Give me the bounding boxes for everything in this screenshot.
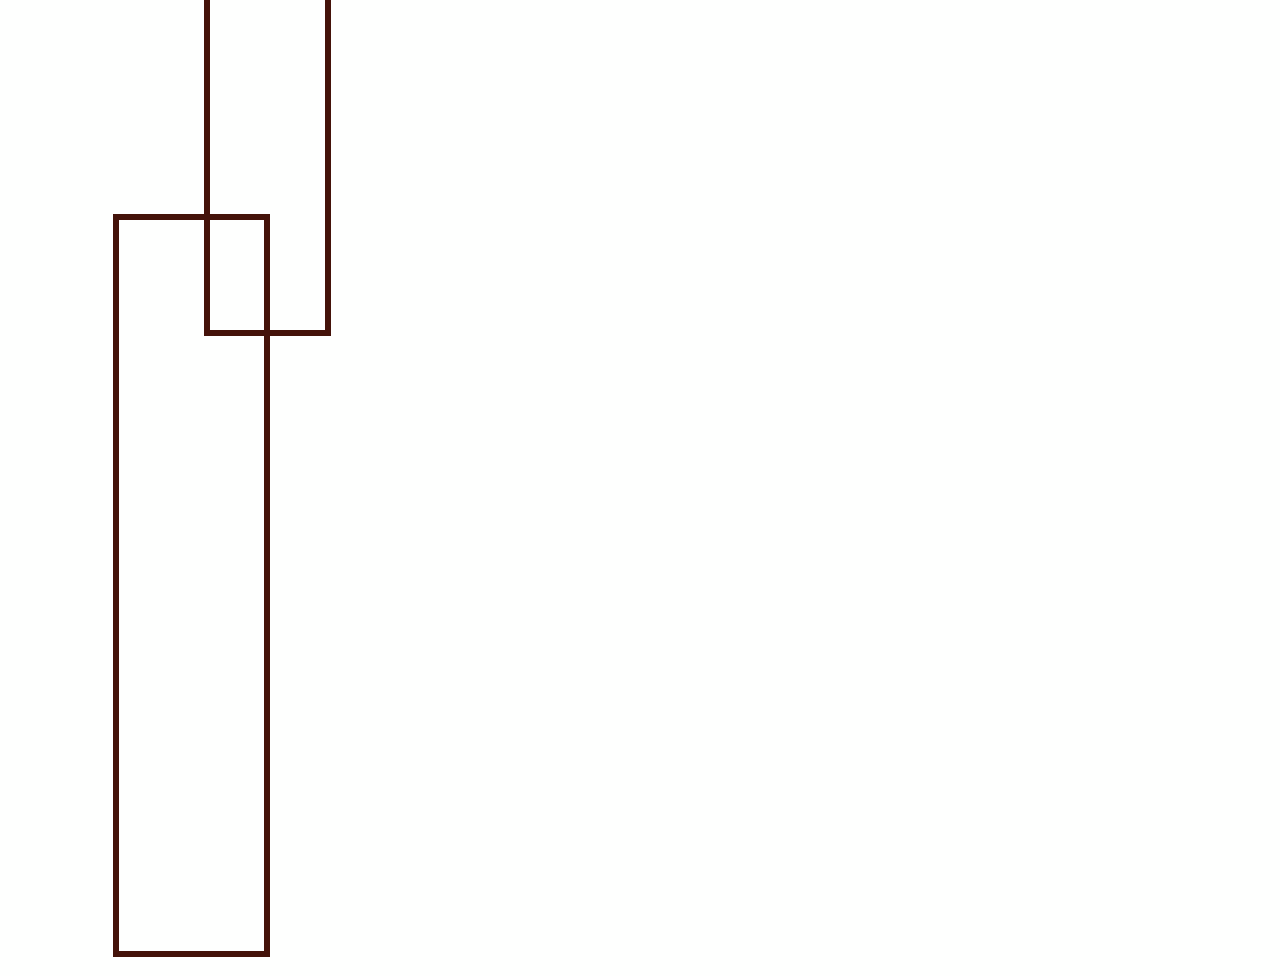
outlined-rectangle-left bbox=[113, 214, 270, 957]
drawing-canvas bbox=[0, 0, 1280, 976]
